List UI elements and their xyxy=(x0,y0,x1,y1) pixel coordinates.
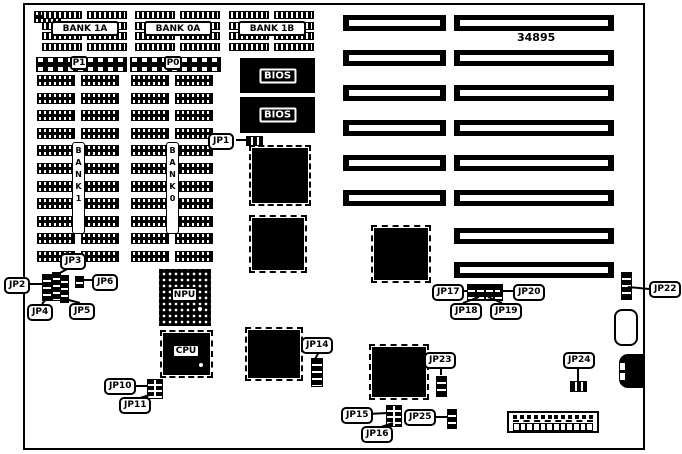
ram-chip xyxy=(175,198,213,209)
power-pin xyxy=(582,415,586,419)
ram-chip xyxy=(175,110,213,121)
jumper-label-jp10: JP10 xyxy=(104,378,136,395)
isa-slot-short xyxy=(343,190,446,206)
isa-slot-short xyxy=(343,15,446,31)
ram-chip xyxy=(37,198,75,209)
ram-chip xyxy=(81,110,119,121)
power-socket xyxy=(520,423,527,431)
jumper-block xyxy=(147,379,163,399)
ram-chip xyxy=(81,233,119,244)
jumper-label-jp16: JP16 xyxy=(361,426,393,443)
ram-chip xyxy=(37,110,75,121)
ram-chip xyxy=(131,198,169,209)
ram-chip xyxy=(180,43,220,51)
ram-chip xyxy=(175,216,213,227)
jumper-label-jp23: JP23 xyxy=(424,352,456,369)
jumper-block xyxy=(436,376,447,397)
ram-chip xyxy=(135,43,175,51)
jumper-label-jp6: JP6 xyxy=(92,274,118,291)
power-pin xyxy=(513,415,517,419)
isa-slot-long xyxy=(454,85,614,101)
jumper-label-jp11: JP11 xyxy=(119,397,151,414)
ram-chip xyxy=(175,145,213,156)
qfp-chip-5 xyxy=(372,347,426,397)
ram-chip xyxy=(131,181,169,192)
connector-notch xyxy=(620,363,625,370)
ram-chip xyxy=(131,145,169,156)
jumper-block xyxy=(621,272,632,300)
ram-chip xyxy=(37,93,75,104)
ram-chip xyxy=(37,163,75,174)
ram-chip xyxy=(131,233,169,244)
ram-chip xyxy=(131,216,169,227)
ram-chip xyxy=(180,11,220,19)
motherboard-diagram: 34895 BIOS BIOS NPU CPU BANK 1ABANK 0ABA… xyxy=(0,0,682,454)
port-label: P0 xyxy=(164,56,182,70)
ram-chip xyxy=(81,75,119,86)
power-socket xyxy=(566,423,573,431)
npu-socket: NPU xyxy=(159,269,211,326)
isa-slot-short xyxy=(343,155,446,171)
qfp-chip-2 xyxy=(252,218,304,270)
bank-vertical-label: BANK1 xyxy=(72,142,85,234)
ram-chip xyxy=(81,128,119,139)
ram-chip xyxy=(131,93,169,104)
bios-1-label: BIOS xyxy=(259,68,296,83)
ram-chip xyxy=(175,233,213,244)
jumper-block xyxy=(311,358,323,387)
ram-chip xyxy=(81,163,119,174)
ram-chip xyxy=(175,93,213,104)
power-socket xyxy=(526,423,533,431)
jumper-label-jp18: JP18 xyxy=(450,303,482,320)
ram-chip xyxy=(37,233,75,244)
jumper-block xyxy=(494,284,503,301)
isa-slot-long xyxy=(454,50,614,66)
jumper-label-jp19: JP19 xyxy=(490,303,522,320)
bank-vertical-label: BANK0 xyxy=(166,142,179,234)
power-pin-row xyxy=(513,415,593,419)
bios-2-label: BIOS xyxy=(259,108,296,123)
ram-chip xyxy=(175,75,213,86)
part-number: 34895 xyxy=(517,31,555,44)
ram-chip xyxy=(37,75,75,86)
port-label: P1 xyxy=(70,56,88,70)
ram-chip xyxy=(87,43,127,51)
power-pin xyxy=(541,415,545,419)
ram-chip xyxy=(175,181,213,192)
power-pin xyxy=(568,415,572,419)
ram-chip xyxy=(42,43,82,51)
jumper-label-jp22: JP22 xyxy=(649,281,681,298)
qfp-chip-1 xyxy=(252,148,308,203)
cpu-pin1-dot xyxy=(199,363,203,367)
ram-chip xyxy=(81,181,119,192)
qfp-chip-3 xyxy=(248,330,300,378)
bank-label: BANK 0A xyxy=(144,21,212,36)
isa-slot-long xyxy=(454,15,614,31)
ram-chip xyxy=(37,128,75,139)
power-connector xyxy=(507,411,599,433)
jumper-block xyxy=(570,381,587,392)
isa-slot-long xyxy=(454,120,614,136)
power-socket xyxy=(540,423,547,431)
power-connector-divider xyxy=(513,420,593,422)
jumper-block xyxy=(246,136,263,146)
ram-chip xyxy=(81,93,119,104)
jumper-label-jp25: JP25 xyxy=(404,409,436,426)
jumper-block xyxy=(75,276,84,288)
ram-chip xyxy=(175,163,213,174)
jumper-label-jp3: JP3 xyxy=(60,253,86,270)
jumper-block xyxy=(60,275,69,303)
ram-chip xyxy=(274,11,314,19)
isa-slot-short xyxy=(343,85,446,101)
ram-chip xyxy=(135,11,175,19)
jumper-block xyxy=(447,409,457,429)
power-socket xyxy=(513,423,520,431)
ram-chip xyxy=(37,181,75,192)
ram-chip xyxy=(37,145,75,156)
keyboard-connector xyxy=(619,354,645,388)
jumper-label-jp1: JP1 xyxy=(208,133,234,150)
power-socket xyxy=(580,423,587,431)
cpu-chip: CPU xyxy=(163,333,210,375)
jumper-block xyxy=(476,284,485,301)
jumper-label-jp4: JP4 xyxy=(27,304,53,321)
battery xyxy=(614,309,638,346)
power-pin xyxy=(534,415,538,419)
ram-chip xyxy=(37,216,75,227)
power-pin xyxy=(527,415,531,419)
power-socket xyxy=(560,423,567,431)
jumper-label-jp24: JP24 xyxy=(563,352,595,369)
jumper-block xyxy=(485,284,494,301)
ram-chip xyxy=(131,75,169,86)
isa-slot-short xyxy=(343,120,446,136)
power-socket xyxy=(546,423,553,431)
jumper-label-jp2: JP2 xyxy=(4,277,30,294)
jumper-label-jp15: JP15 xyxy=(341,407,373,424)
ram-chip xyxy=(131,128,169,139)
jumper-label-jp14: JP14 xyxy=(301,337,333,354)
ram-chip xyxy=(229,43,269,51)
power-pin xyxy=(548,415,552,419)
ram-chip xyxy=(81,251,119,262)
power-socket xyxy=(533,423,540,431)
jumper-label-jp17: JP17 xyxy=(432,284,464,301)
npu-label: NPU xyxy=(171,287,198,302)
power-socket xyxy=(586,423,593,431)
bios-chip-2: BIOS xyxy=(240,97,315,133)
connector-notch xyxy=(620,373,625,380)
isa-slot-long xyxy=(454,228,614,244)
power-pin xyxy=(554,415,558,419)
cpu-label: CPU xyxy=(172,344,200,358)
power-socket xyxy=(553,423,560,431)
ram-chip xyxy=(175,251,213,262)
power-pin xyxy=(520,415,524,419)
power-pin xyxy=(561,415,565,419)
qfp-chip-4 xyxy=(374,228,428,280)
ram-chip xyxy=(131,251,169,262)
ram-chip xyxy=(81,145,119,156)
bank-label: BANK 1A xyxy=(51,21,119,36)
ram-chip xyxy=(42,11,82,19)
ram-chip xyxy=(81,216,119,227)
ram-chip xyxy=(274,43,314,51)
power-pin xyxy=(589,415,593,419)
isa-slot-long xyxy=(454,190,614,206)
ram-chip xyxy=(131,163,169,174)
ram-chip xyxy=(81,198,119,209)
bank-label: BANK 1B xyxy=(238,21,306,36)
power-socket-row xyxy=(513,423,593,431)
jumper-block xyxy=(386,405,402,427)
isa-slot-short xyxy=(343,50,446,66)
isa-slot-long xyxy=(454,262,614,278)
npu-pin1-dot xyxy=(198,307,202,311)
power-pin xyxy=(575,415,579,419)
jumper-block xyxy=(467,284,476,301)
power-socket xyxy=(573,423,580,431)
isa-slot-long xyxy=(454,155,614,171)
bios-chip-1: BIOS xyxy=(240,58,315,93)
jumper-label-jp5: JP5 xyxy=(69,303,95,320)
jumper-block xyxy=(42,274,52,301)
ram-chip xyxy=(229,11,269,19)
ram-chip xyxy=(131,110,169,121)
jumper-label-jp20: JP20 xyxy=(513,284,545,301)
ram-chip xyxy=(87,11,127,19)
